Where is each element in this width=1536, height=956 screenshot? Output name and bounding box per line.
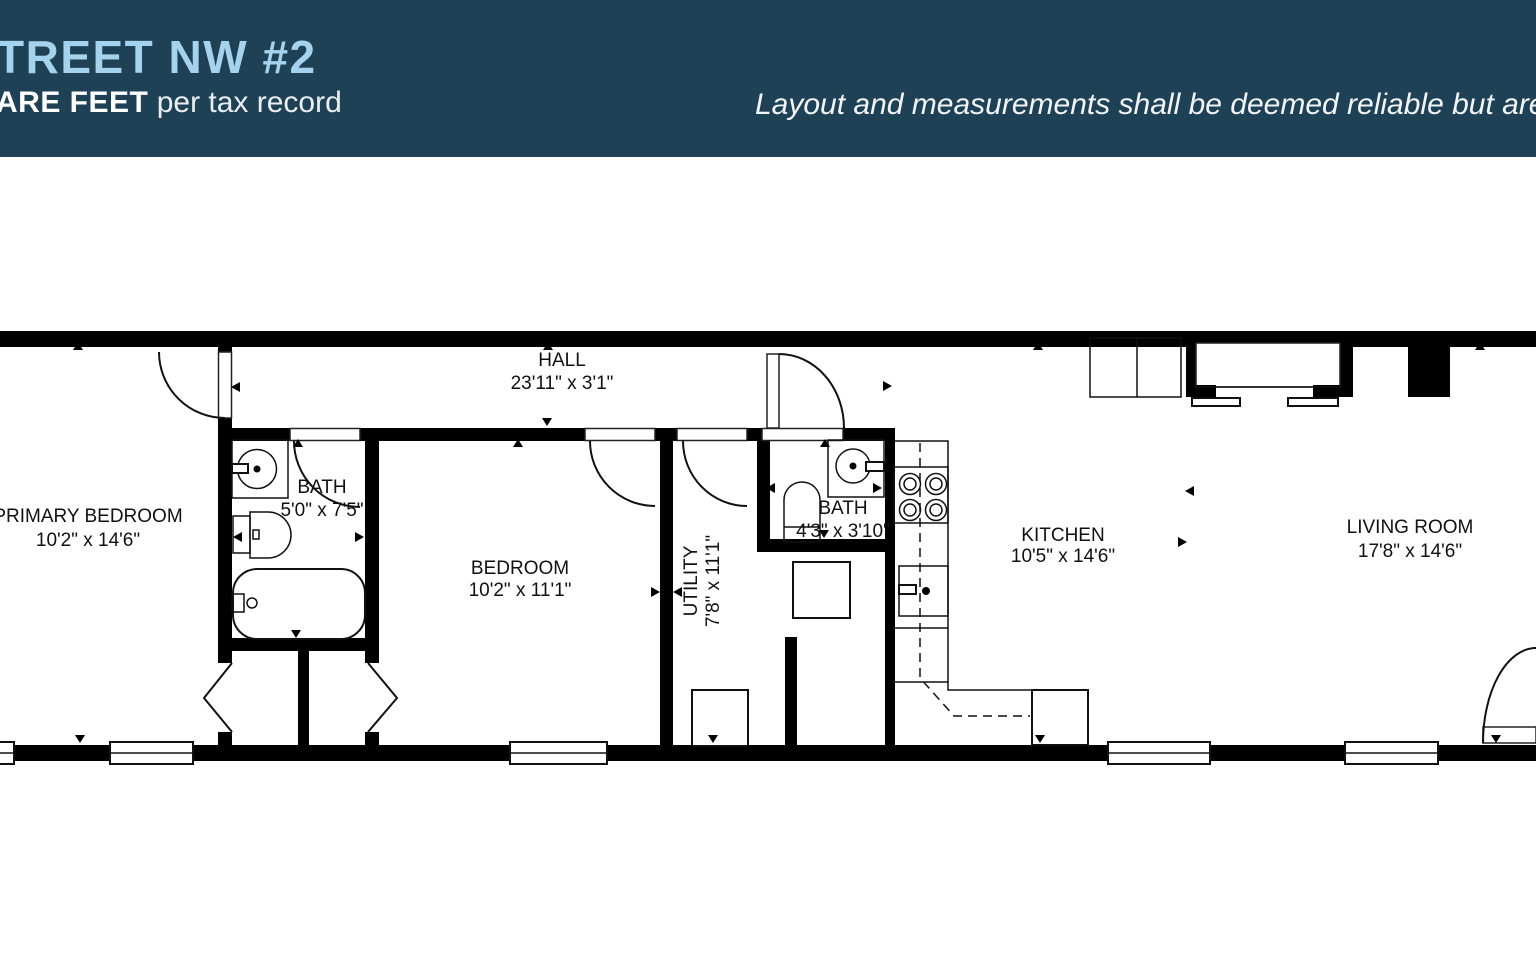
svg-text:KITCHEN: KITCHEN	[1021, 525, 1104, 546]
svg-text:BATH: BATH	[818, 498, 867, 519]
chase-block	[1408, 331, 1450, 397]
door-entry	[1483, 648, 1536, 743]
door-bedroom	[590, 441, 655, 506]
svg-text:4'3" x 3'10": 4'3" x 3'10"	[796, 521, 890, 542]
window	[0, 742, 14, 764]
primary-bath-fixtures	[232, 440, 365, 639]
window	[110, 742, 193, 764]
closet-door-left	[204, 663, 232, 732]
room-label-kitchen: KITCHEN 10'5" x 14'6"	[1011, 525, 1115, 567]
dryer	[692, 690, 748, 746]
door-utility	[683, 441, 747, 506]
svg-text:10'2" x 14'6": 10'2" x 14'6"	[36, 530, 140, 551]
svg-text:10'5" x 14'6": 10'5" x 14'6"	[1011, 546, 1115, 567]
entry-niche	[1196, 343, 1340, 387]
svg-text:17'8" x 14'6": 17'8" x 14'6"	[1358, 541, 1462, 562]
kitchen-sink	[899, 566, 948, 616]
room-label-hall: HALL 23'11" x 3'1"	[511, 350, 614, 394]
window	[1345, 742, 1438, 764]
window	[1108, 742, 1210, 764]
svg-text:23'11" x 3'1": 23'11" x 3'1"	[511, 373, 614, 394]
bathroom-sink	[232, 440, 288, 498]
washer	[793, 562, 850, 618]
door-primary-bedroom	[159, 352, 232, 418]
svg-text:HALL: HALL	[538, 350, 586, 371]
room-label-bedroom: BEDROOM 10'2" x 11'1"	[469, 558, 572, 601]
sliding-closet-doors	[1192, 398, 1338, 406]
room-label-utility: UTILITY 7'8" x 11'1"	[681, 535, 724, 627]
svg-text:10'2" x 11'1": 10'2" x 11'1"	[469, 580, 572, 601]
room-label-bath-2: BATH 4'3" x 3'10"	[796, 498, 890, 542]
floorplan-drawing: PRIMARY BEDROOM 10'2" x 14'6" BATH 5'0" …	[0, 0, 1536, 956]
kitchen-fixtures	[893, 338, 1340, 745]
svg-text:5'0" x 7'5": 5'0" x 7'5"	[280, 500, 363, 521]
bathtub	[232, 569, 365, 639]
room-label-primary-bath: BATH 5'0" x 7'5"	[280, 477, 363, 521]
stove	[894, 467, 948, 523]
door-bath-2	[767, 354, 844, 428]
room-label-living-room: LIVING ROOM 17'8" x 14'6"	[1347, 517, 1474, 562]
closet-door-right	[368, 663, 397, 732]
svg-text:UTILITY: UTILITY	[681, 545, 702, 616]
svg-text:BATH: BATH	[297, 477, 346, 498]
window	[510, 742, 607, 764]
svg-text:BEDROOM: BEDROOM	[471, 558, 569, 579]
svg-text:LIVING ROOM: LIVING ROOM	[1347, 517, 1474, 538]
upper-cabinet-dashed-line	[920, 443, 1030, 716]
svg-text:7'8" x 11'1": 7'8" x 11'1"	[703, 535, 724, 627]
room-label-primary-bedroom: PRIMARY BEDROOM 10'2" x 14'6"	[0, 506, 183, 551]
svg-text:PRIMARY BEDROOM: PRIMARY BEDROOM	[0, 506, 183, 527]
floorplan-page: TREET NW #2 ARE FEET per tax record Layo…	[0, 0, 1536, 956]
